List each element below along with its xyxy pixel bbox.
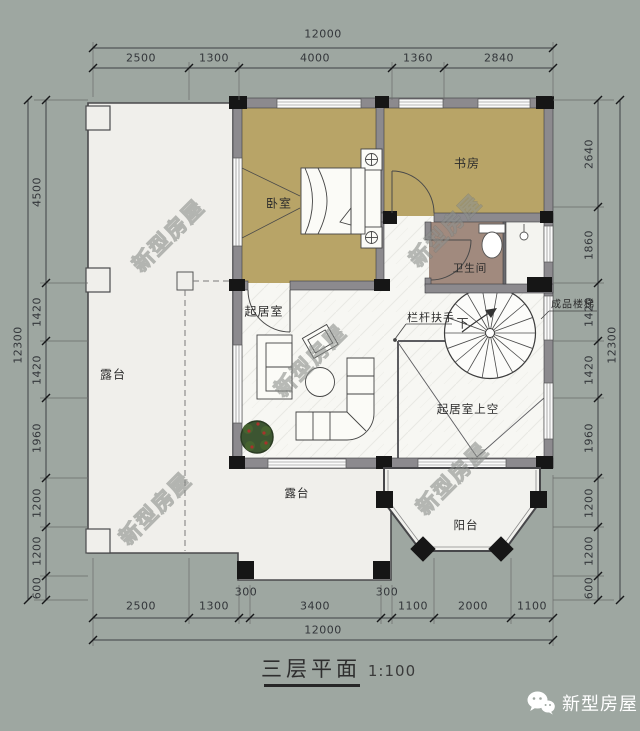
page-title: 三层平面	[261, 653, 361, 683]
room-label-living-room: 起居室	[244, 303, 283, 320]
annotation-railing: 栏杆扶手	[407, 309, 455, 325]
room-label-terrace-left: 露台	[100, 366, 126, 383]
spiral-staircase	[445, 288, 536, 379]
room-label-bathroom: 卫生间	[453, 261, 488, 276]
brand-logo: 新型房屋	[527, 690, 638, 716]
wechat-icon	[527, 691, 555, 715]
dim-left-segment: 1420	[31, 355, 44, 385]
dim-right-segment: 600	[583, 577, 596, 600]
plant	[241, 421, 273, 453]
dim-bottom-segment: 1100	[517, 600, 547, 613]
dim-bottom-segment: 1100	[398, 600, 428, 613]
annotation-prefab-stair: 成品楼梯	[551, 296, 595, 311]
dim-left-segment: 4500	[31, 177, 44, 207]
dim-top-segment: 2500	[126, 52, 156, 65]
dim-left-segment: 1200	[31, 488, 44, 518]
annotation-stair-down: 下	[456, 315, 469, 332]
drawing-scale: 1:100	[368, 662, 416, 680]
dim-left-segment: 1960	[31, 423, 44, 453]
room-label-living-void: 起居室上空	[437, 401, 500, 417]
dim-top-segment: 1360	[403, 52, 433, 65]
dim-bottom-total: 12000	[304, 624, 342, 637]
brand-name: 新型房屋	[562, 690, 638, 716]
dim-top-segment: 2840	[484, 52, 514, 65]
dim-bottom-segment: 2000	[458, 600, 488, 613]
dim-left-total: 12300	[12, 326, 25, 364]
dim-top-segment: 4000	[300, 52, 330, 65]
room-label-bedroom: 卧室	[266, 195, 292, 212]
dim-right-segment: 1860	[583, 230, 596, 260]
dim-right-segment: 1200	[583, 536, 596, 566]
dim-bottom-segment: 300	[235, 586, 258, 599]
dim-left-segment: 1420	[31, 297, 44, 327]
room-label-study: 书房	[454, 155, 480, 172]
dim-left-segment: 1200	[31, 536, 44, 566]
dim-bottom-segment: 1300	[199, 600, 229, 613]
dim-right-total: 12300	[606, 326, 619, 364]
dim-right-segment: 2640	[583, 139, 596, 169]
shower-floor	[505, 222, 546, 286]
floor-plan-page: 12000 2500 1300 4000 1360 2840 2500 1300…	[0, 0, 640, 731]
dim-right-segment: 1960	[583, 423, 596, 453]
title-underline	[264, 684, 360, 687]
dim-bottom-segment: 3400	[300, 600, 330, 613]
dim-bottom-segment: 2500	[126, 600, 156, 613]
dim-left-segment: 600	[31, 577, 44, 600]
dim-right-segment: 1200	[583, 488, 596, 518]
dim-right-segment: 1420	[583, 355, 596, 385]
dim-bottom-segment: 300	[376, 586, 399, 599]
room-label-balcony: 阳台	[454, 517, 479, 533]
dim-top-segment: 1300	[199, 52, 229, 65]
dim-top-total: 12000	[304, 28, 342, 41]
room-label-terrace-lower: 露台	[285, 485, 310, 501]
